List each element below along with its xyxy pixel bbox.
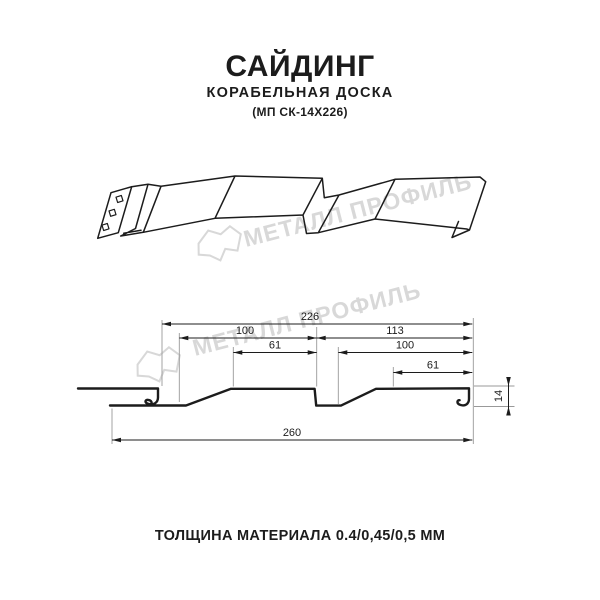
profile-outline	[78, 388, 469, 405]
lock-fold-lines	[121, 184, 161, 236]
watermark-text: МЕТАЛЛ ПРОФИЛЬ	[241, 168, 475, 252]
arrow-left-icon	[179, 336, 188, 341]
arrow-right-icon	[463, 336, 472, 341]
dim-14: 14	[493, 377, 511, 416]
arrow-left-icon	[393, 370, 402, 375]
nail-hole	[102, 224, 109, 231]
dim-label: 100	[396, 340, 414, 352]
arrow-right-icon	[463, 350, 472, 355]
page-title: САЙДИНГ	[0, 50, 600, 84]
metall-profil-logo-icon	[196, 225, 243, 262]
dim-label: 226	[301, 311, 319, 323]
metall-profil-logo-icon	[135, 346, 182, 383]
arrow-right-icon	[308, 336, 317, 341]
dim-label: 260	[283, 427, 301, 439]
nail-hole	[116, 196, 123, 203]
dim-113: 113	[317, 325, 473, 340]
arrow-right-icon	[463, 370, 472, 375]
product-diagram-page: { "header": { "title": "САЙДИНГ", "subti…	[0, 0, 600, 600]
dim-100-right: 100	[338, 340, 472, 355]
page-subtitle: КОРАБЕЛЬНАЯ ДОСКА	[0, 85, 600, 101]
nail-strip	[98, 187, 132, 239]
arrow-left-icon	[338, 350, 347, 355]
arrow-left-icon	[162, 322, 171, 327]
dim-61-right: 61	[393, 360, 472, 375]
dim-226: 226	[162, 311, 472, 326]
model-code: (МП СК-14Х226)	[0, 105, 600, 119]
watermark-upper: МЕТАЛЛ ПРОФИЛЬ	[196, 168, 475, 263]
extension-lines	[112, 318, 515, 444]
arrow-down-icon	[506, 377, 511, 386]
dim-label: 61	[269, 340, 281, 352]
dim-label: 14	[493, 390, 505, 402]
dim-label: 61	[427, 360, 439, 372]
arrow-left-icon	[112, 438, 121, 443]
arrow-right-icon	[463, 322, 472, 327]
arrow-right-icon	[308, 350, 317, 355]
arrow-left-icon	[317, 336, 326, 341]
dim-label: 100	[236, 325, 254, 337]
nail-hole	[109, 209, 116, 216]
arrow-right-icon	[463, 438, 472, 443]
arrow-up-icon	[506, 407, 511, 416]
thickness-note: ТОЛЩИНА МАТЕРИАЛА 0.4/0,45/0,5 ММ	[0, 528, 600, 544]
dim-label: 113	[386, 325, 404, 337]
dim-260: 260	[112, 427, 472, 442]
watermark-lower: МЕТАЛЛ ПРОФИЛЬ	[135, 277, 424, 384]
